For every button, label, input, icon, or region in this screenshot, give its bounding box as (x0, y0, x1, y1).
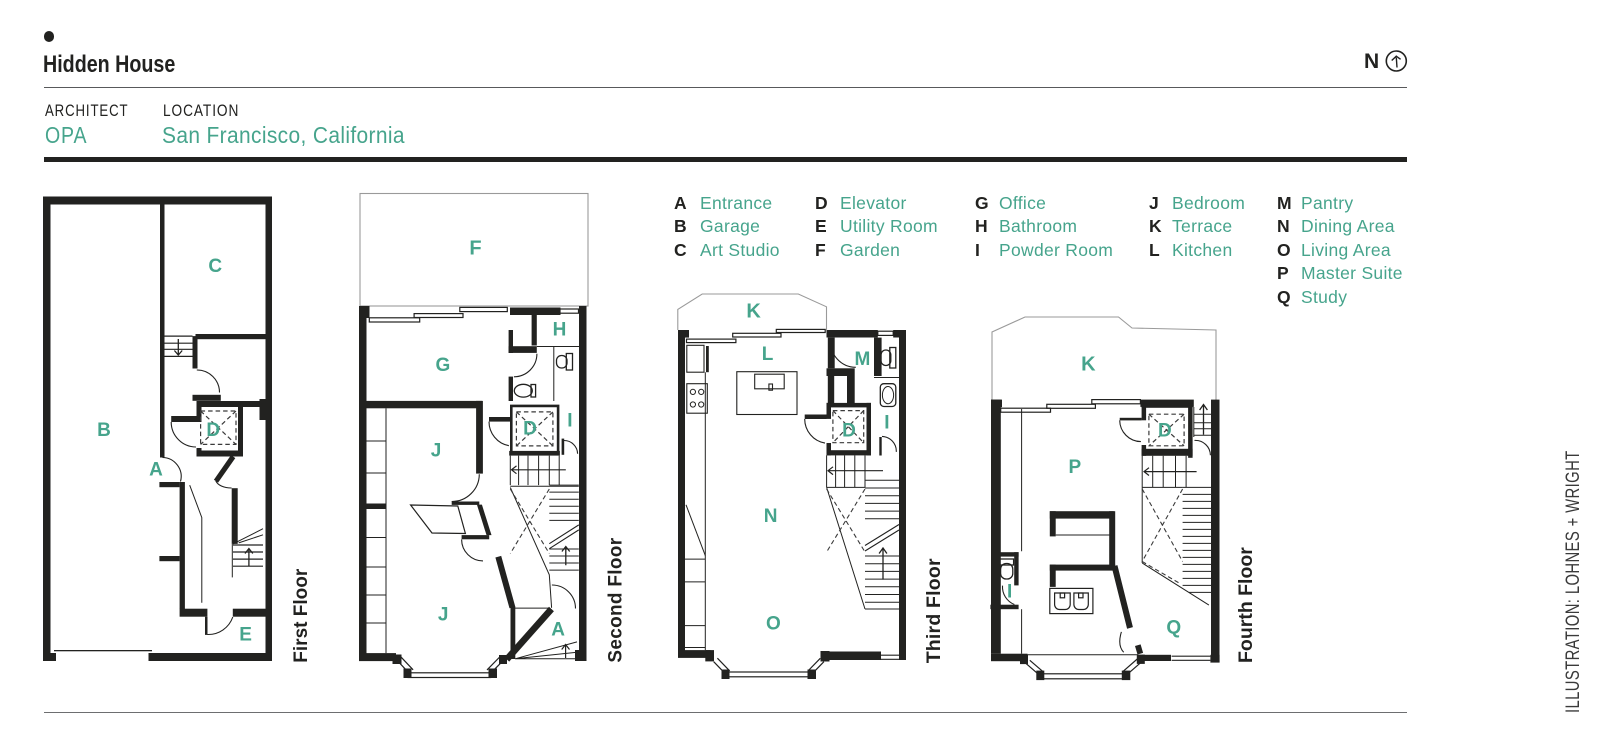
svg-text:A: A (149, 460, 163, 481)
svg-text:I: I (1007, 582, 1012, 603)
svg-text:I: I (567, 411, 572, 432)
svg-text:M: M (854, 349, 870, 370)
svg-text:J: J (438, 605, 449, 626)
svg-text:A: A (551, 620, 565, 641)
svg-text:C: C (208, 256, 222, 277)
svg-text:D: D (523, 419, 537, 440)
svg-text:D: D (842, 421, 856, 442)
svg-text:H: H (553, 320, 567, 341)
svg-text:E: E (239, 625, 252, 646)
svg-text:I: I (884, 413, 889, 434)
svg-text:G: G (436, 355, 451, 376)
svg-text:Q: Q (1166, 618, 1181, 639)
svg-text:D: D (1158, 421, 1172, 442)
svg-text:K: K (746, 301, 761, 323)
svg-text:First Floor: First Floor (291, 568, 312, 663)
svg-text:F: F (469, 238, 481, 260)
svg-text:Third Floor: Third Floor (923, 558, 945, 663)
svg-text:B: B (97, 420, 111, 441)
svg-text:D: D (206, 420, 220, 441)
svg-text:P: P (1068, 457, 1081, 478)
svg-text:Second Floor: Second Floor (606, 537, 627, 662)
svg-text:L: L (762, 344, 774, 365)
svg-text:O: O (766, 614, 781, 635)
svg-text:Fourth Floor: Fourth Floor (1235, 547, 1257, 663)
svg-text:N: N (764, 506, 778, 527)
svg-text:K: K (1081, 354, 1096, 376)
svg-text:J: J (431, 441, 442, 462)
